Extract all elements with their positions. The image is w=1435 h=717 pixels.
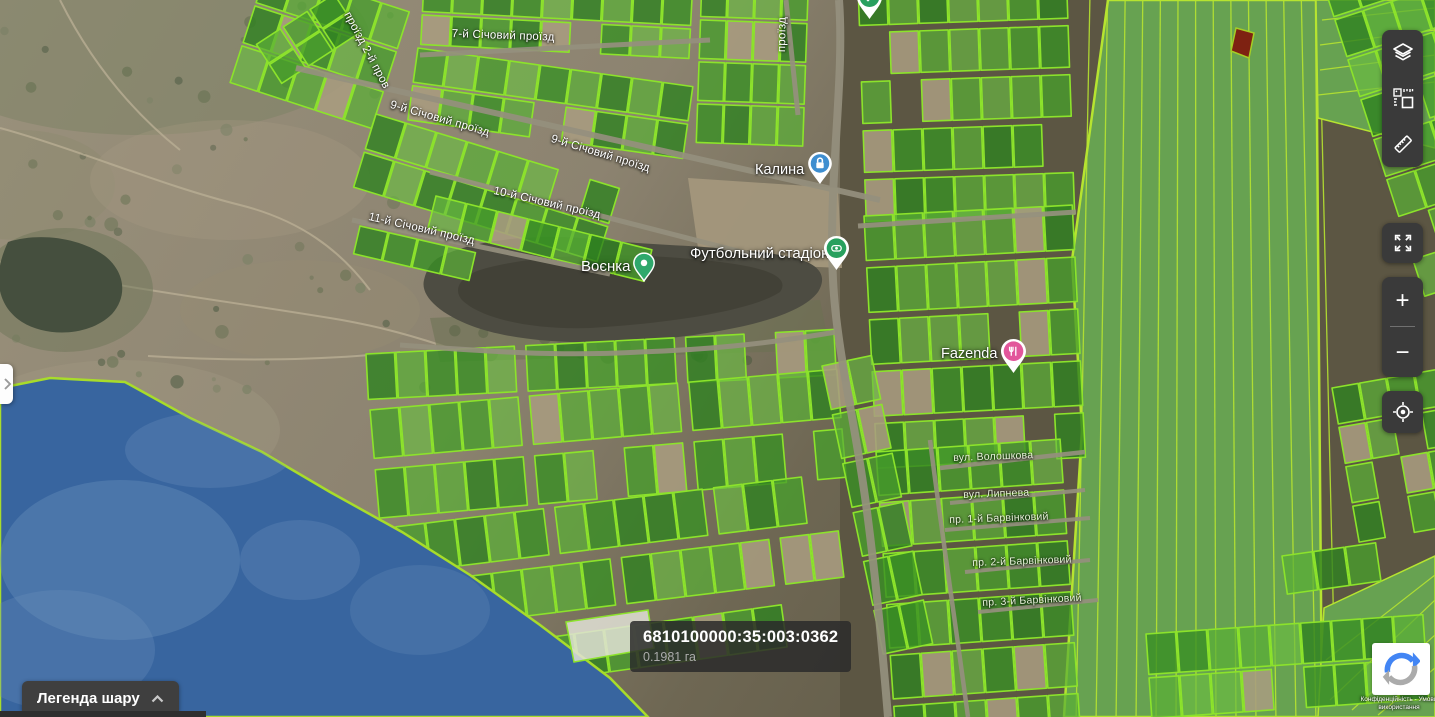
stadium-icon: [823, 235, 850, 271]
measure-parcel-icon: [1391, 86, 1415, 110]
fullscreen-button[interactable]: [1382, 223, 1423, 263]
pin-icon: [856, 0, 883, 20]
layers-icon: [1391, 41, 1415, 65]
lock-icon: [807, 151, 833, 185]
fullscreen-icon: [1392, 232, 1414, 254]
poi-marker-fazenda[interactable]: [1000, 338, 1027, 379]
zoom-control: + −: [1382, 277, 1423, 377]
restaurant-icon: [1000, 338, 1027, 374]
recaptcha-badge[interactable]: [1372, 643, 1430, 695]
field-strips-area: [1064, 0, 1322, 717]
zoom-divider: [1390, 326, 1415, 327]
map-toolbar: [1382, 30, 1423, 167]
poi-marker-voenka[interactable]: [633, 252, 655, 287]
locate-icon: [1391, 400, 1415, 424]
expand-panel-tab[interactable]: [0, 364, 13, 404]
chevron-right-icon: [2, 377, 12, 391]
zoom-in-button[interactable]: +: [1382, 279, 1423, 323]
layer-legend-label: Легенда шару: [37, 690, 140, 707]
bottom-panel-edge: [0, 711, 206, 717]
locate-control: [1382, 391, 1423, 433]
poi-marker-kalyna[interactable]: [807, 151, 833, 190]
locate-button[interactable]: [1382, 391, 1423, 433]
ruler-button[interactable]: [1382, 123, 1423, 165]
poi-marker-top-partial[interactable]: [856, 0, 883, 25]
ruler-icon: [1391, 132, 1415, 156]
fullscreen-control: [1382, 223, 1423, 263]
poi-marker-stadium[interactable]: [823, 235, 850, 276]
map-canvas[interactable]: [0, 0, 1435, 717]
layers-button[interactable]: [1382, 32, 1423, 74]
recaptcha-logo-icon: [1382, 650, 1420, 688]
measure-parcel-button[interactable]: [1382, 77, 1423, 119]
pin-icon: [633, 252, 655, 282]
chevron-up-icon: [151, 695, 164, 703]
zoom-out-button[interactable]: −: [1382, 331, 1423, 375]
